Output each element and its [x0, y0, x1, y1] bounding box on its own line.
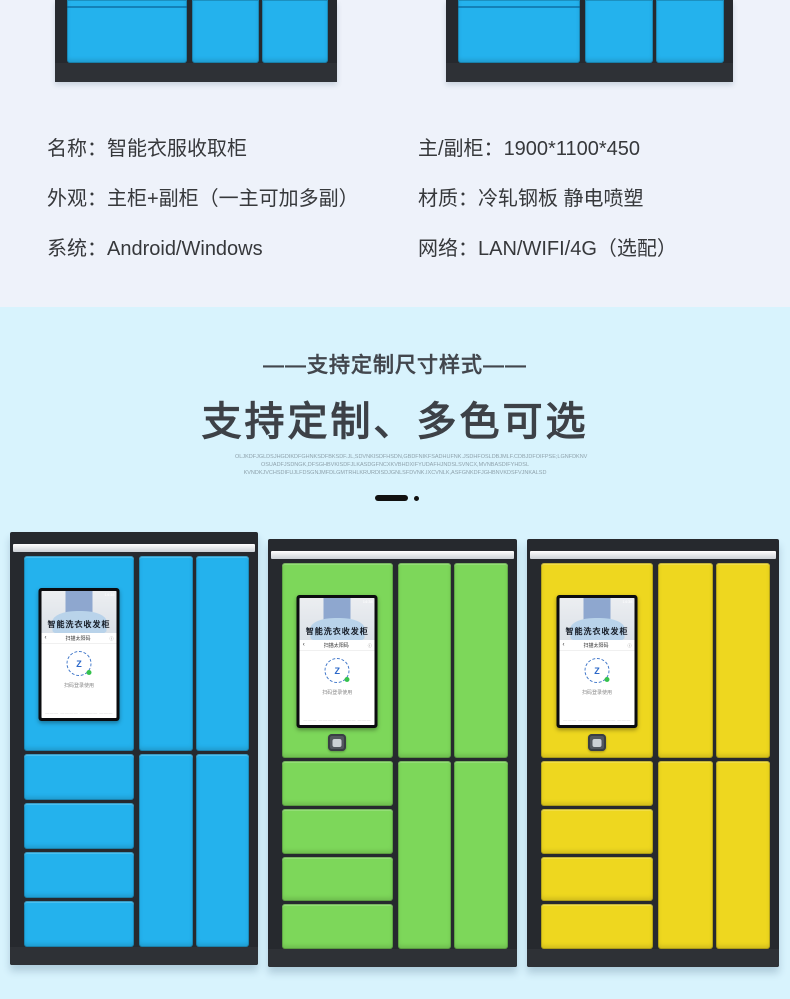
locker-green: 14:38 智能洗衣收发柜 ‹ 扫描太阳码 ⓘ Z [268, 539, 517, 967]
qr-emblem: Z [67, 651, 92, 676]
spec-row-appearance: 外观：主柜+副柜（一主可加多副） [47, 187, 359, 211]
locker-door [262, 0, 328, 63]
locker-left-column: 14:38 智能洗衣收发柜 ‹ 扫描太阳码 ⓘ Z [541, 563, 653, 949]
locker-yellow: 14:38 智能洗衣收发柜 ‹ 扫描太阳码 ⓘ Z [527, 539, 779, 967]
locker-door [585, 0, 653, 63]
screen-caption: 扫码登录使用 [560, 689, 635, 696]
locker-right-column [658, 563, 770, 949]
screen-ui: ‹ 扫描太阳码 ⓘ Z 扫码登录使用 ——— ———— ———— ——— [560, 640, 635, 725]
locker-door-row [398, 761, 509, 949]
emblem-green-dot [345, 677, 350, 682]
locker-door [398, 761, 452, 949]
screen-ui: ‹ 扫描太阳码 ⓘ Z 扫码登录使用 ——— ———— ———— ——— [300, 640, 375, 725]
spec-row-name: 名称：智能衣服收取柜 [47, 137, 359, 161]
screen-clock: 14:38 [622, 599, 632, 604]
locker-right-column [139, 556, 249, 947]
locker-door [454, 563, 508, 758]
screen-header: ‹ 扫描太阳码 ⓘ [560, 640, 635, 651]
locker-blue: 14:38 智能洗衣收发柜 ‹ 扫描太阳码 ⓘ Z [10, 532, 258, 965]
banner-title: 支持定制、多色可选 [0, 389, 790, 447]
qr-emblem: Z [585, 658, 610, 683]
screen-photo-title: 智能洗衣收发柜 [560, 626, 635, 637]
spec-label: 名称： [47, 138, 107, 160]
back-icon: ‹ [303, 643, 305, 648]
locker-door [282, 904, 393, 949]
emblem-green-dot [87, 670, 92, 675]
spec-row-material: 材质：冷轧钢板 静电喷塑 [418, 187, 677, 211]
locker-main-door: 14:38 智能洗衣收发柜 ‹ 扫描太阳码 ⓘ Z [282, 563, 393, 758]
fineprint-line: KVNDKJVCHSDIFUJLFDSGNJMFDLGMTRHLKRURDISD… [235, 469, 555, 477]
locker-door [541, 857, 653, 902]
screen-caption: 扫码登录使用 [42, 682, 117, 689]
screen-header-title: 扫描太阳码 [583, 642, 608, 649]
screen-caption: 扫码登录使用 [300, 689, 375, 696]
locker-base [268, 949, 517, 967]
screen-photo: 14:38 智能洗衣收发柜 [42, 591, 117, 633]
locker-door [716, 761, 771, 949]
screen-clock: 14:38 [363, 599, 373, 604]
locker-top-light [13, 544, 255, 552]
locker-doors: 14:38 智能洗衣收发柜 ‹ 扫描太阳码 ⓘ Z [282, 563, 508, 949]
locker-door-row [139, 556, 249, 751]
locker-door [67, 0, 187, 63]
locker-screen: 14:38 智能洗衣收发柜 ‹ 扫描太阳码 ⓘ Z [297, 595, 378, 728]
screen-content: 14:38 智能洗衣收发柜 ‹ 扫描太阳码 ⓘ Z [560, 598, 635, 725]
spec-value: 冷轧钢板 静电喷塑 [478, 188, 644, 210]
spec-value: 主柜+副柜（一主可加多副） [107, 188, 359, 210]
spec-label: 材质： [418, 188, 478, 210]
scan-button [588, 734, 606, 751]
locker-screen: 14:38 智能洗衣收发柜 ‹ 扫描太阳码 ⓘ Z [557, 595, 638, 728]
info-icon: ⓘ [368, 643, 372, 648]
screen-photo-title: 智能洗衣收发柜 [42, 619, 117, 630]
info-icon: ⓘ [109, 636, 113, 641]
locker-door-row [139, 754, 249, 947]
locker-door [139, 556, 193, 751]
banner-fineprint: OLJKDFJGLDSJHGDIKDFGHNKSDFBKSDF.JL,SDVNK… [235, 453, 555, 477]
spec-value: Android/Windows [107, 238, 263, 260]
back-icon: ‹ [563, 643, 565, 648]
locker-door [196, 556, 250, 751]
screen-photo: 14:38 智能洗衣收发柜 [560, 598, 635, 640]
locker-top-light [530, 551, 776, 559]
locker-door [454, 761, 508, 949]
locker-door-row [658, 761, 770, 949]
locker-door [282, 761, 393, 806]
spec-row-size: 主/副柜：1900*1100*450 [418, 137, 677, 161]
scan-button [328, 734, 346, 751]
partial-locker-doors [458, 0, 724, 63]
spec-label: 系统： [47, 238, 107, 260]
spec-value: LAN/WIFI/4G（选配） [478, 238, 677, 260]
spec-value: 1900*1100*450 [504, 138, 640, 160]
spec-value: 智能衣服收取柜 [107, 138, 247, 160]
locker-base [446, 63, 733, 82]
spec-label: 外观： [47, 188, 107, 210]
locker-main-door: 14:38 智能洗衣收发柜 ‹ 扫描太阳码 ⓘ Z [24, 556, 134, 751]
locker-doors: 14:38 智能洗衣收发柜 ‹ 扫描太阳码 ⓘ Z [541, 563, 770, 949]
locker-door [541, 809, 653, 854]
screen-footer: ——— ———— ———— ——— [560, 717, 635, 722]
locker-base [527, 949, 779, 967]
qr-emblem: Z [325, 658, 350, 683]
locker-door [541, 904, 653, 949]
screen-photo-title: 智能洗衣收发柜 [300, 626, 375, 637]
locker-door [398, 563, 452, 758]
partial-locker-right [446, 0, 733, 82]
info-icon: ⓘ [627, 643, 631, 648]
emblem-letter: Z [594, 666, 600, 676]
spec-label: 主/副柜： [418, 138, 504, 160]
spec-label: 网络： [418, 238, 478, 260]
screen-header-title: 扫描太阳码 [65, 635, 90, 642]
locker-left-column: 14:38 智能洗衣收发柜 ‹ 扫描太阳码 ⓘ Z [282, 563, 393, 949]
divider-bar [375, 495, 408, 501]
locker-door [656, 0, 724, 63]
emblem-letter: Z [76, 659, 82, 669]
screen-footer: ——— ———— ———— ——— [300, 717, 375, 722]
locker-door [458, 0, 580, 63]
locker-left-column: 14:38 智能洗衣收发柜 ‹ 扫描太阳码 ⓘ Z [24, 556, 134, 947]
screen-clock: 14:38 [104, 592, 114, 597]
spec-row-network: 网络：LAN/WIFI/4G（选配） [418, 237, 677, 261]
spec-row-system: 系统：Android/Windows [47, 237, 359, 261]
locker-screen: 14:38 智能洗衣收发柜 ‹ 扫描太阳码 ⓘ Z [39, 588, 120, 721]
partial-locker-doors [67, 0, 328, 63]
screen-photo: 14:38 智能洗衣收发柜 [300, 598, 375, 640]
screen-content: 14:38 智能洗衣收发柜 ‹ 扫描太阳码 ⓘ Z [300, 598, 375, 725]
locker-door [541, 761, 653, 806]
locker-door [24, 754, 134, 800]
emblem-green-dot [605, 677, 610, 682]
locker-door [192, 0, 258, 63]
locker-door [24, 803, 134, 849]
locker-door [716, 563, 771, 758]
locker-door [282, 857, 393, 902]
locker-door [196, 754, 250, 947]
locker-door [658, 563, 713, 758]
locker-base [10, 947, 258, 965]
spec-section: 名称：智能衣服收取柜 外观：主柜+副柜（一主可加多副） 系统：Android/W… [0, 0, 790, 307]
product-detail-page: 名称：智能衣服收取柜 外观：主柜+副柜（一主可加多副） 系统：Android/W… [0, 0, 790, 999]
locker-door [24, 852, 134, 898]
screen-header: ‹ 扫描太阳码 ⓘ [42, 633, 117, 644]
locker-door [139, 754, 193, 947]
spec-column-left: 名称：智能衣服收取柜 外观：主柜+副柜（一主可加多副） 系统：Android/W… [47, 137, 359, 287]
back-icon: ‹ [45, 636, 47, 641]
spec-column-right: 主/副柜：1900*1100*450 材质：冷轧钢板 静电喷塑 网络：LAN/W… [418, 137, 677, 287]
screen-content: 14:38 智能洗衣收发柜 ‹ 扫描太阳码 ⓘ Z [42, 591, 117, 718]
locker-base [55, 63, 337, 82]
screen-header: ‹ 扫描太阳码 ⓘ [300, 640, 375, 651]
locker-door [282, 809, 393, 854]
locker-door [24, 901, 134, 947]
screen-ui: ‹ 扫描太阳码 ⓘ Z 扫码登录使用 ——— ———— ———— ——— [42, 633, 117, 718]
screen-footer: ——— ———— ———— ——— [42, 710, 117, 715]
divider-dot [414, 496, 419, 501]
emblem-letter: Z [335, 666, 341, 676]
fineprint-line: OSUADFJSDNGK,DFSGHBVKISDFJLKASDGFNCXKVBH… [235, 461, 555, 469]
locker-door-row [658, 563, 770, 758]
locker-right-column [398, 563, 509, 949]
locker-doors: 14:38 智能洗衣收发柜 ‹ 扫描太阳码 ⓘ Z [24, 556, 249, 947]
screen-header-title: 扫描太阳码 [324, 642, 349, 649]
locker-top-light [271, 551, 514, 559]
locker-main-door: 14:38 智能洗衣收发柜 ‹ 扫描太阳码 ⓘ Z [541, 563, 653, 758]
partial-locker-left [55, 0, 337, 82]
locker-door [658, 761, 713, 949]
locker-door-row [398, 563, 509, 758]
banner-subtitle: ——支持定制尺寸样式—— [0, 349, 790, 379]
fineprint-line: OLJKDFJGLDSJHGDIKDFGHNKSDFBKSDF.JL,SDVNK… [235, 453, 555, 461]
